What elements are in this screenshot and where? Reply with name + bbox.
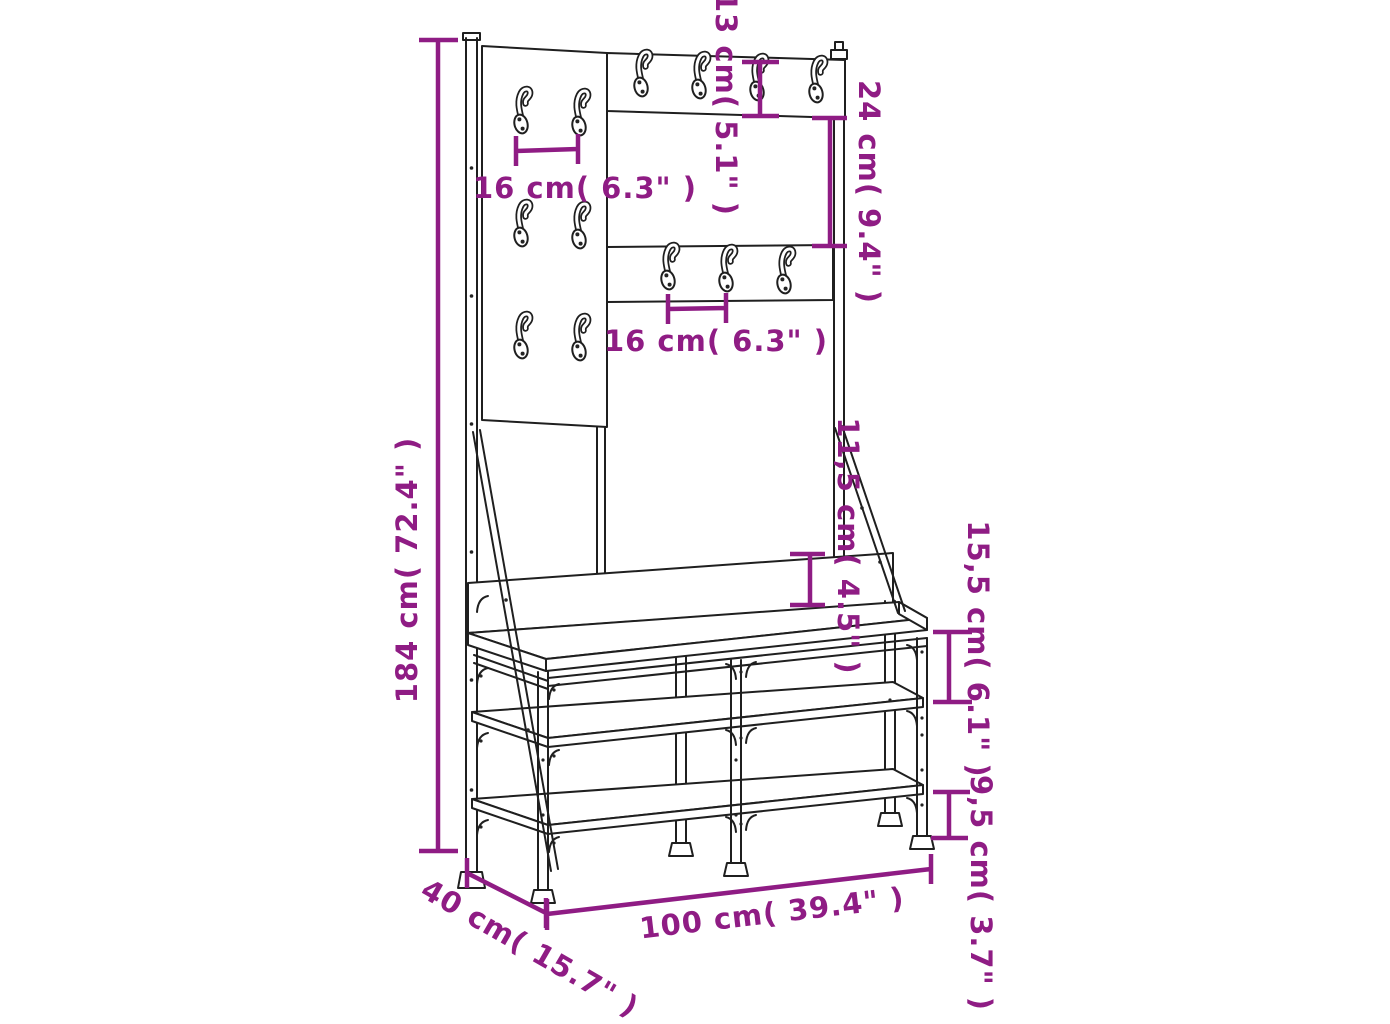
dimension-line	[812, 118, 847, 246]
dimension-label: 16 cm( 6.3" )	[604, 324, 828, 358]
dimension-depth: 40 cm( 15.7" )	[415, 858, 644, 1024]
left-post	[458, 33, 485, 888]
dimension-label: 184 cm( 72.4" )	[390, 437, 424, 703]
product-diagram: 184 cm( 72.4" ) 13 cm( 5.1" ) 24 cm( 9.4…	[0, 0, 1390, 1024]
dimension-upper-shelf-clearance: 15,5 cm( 6.1" )	[933, 520, 995, 777]
center-support-strip	[597, 427, 605, 574]
dimension-label: 40 cm( 15.7" )	[415, 872, 644, 1024]
diagram-canvas: 184 cm( 72.4" ) 13 cm( 5.1" ) 24 cm( 9.4…	[0, 0, 1390, 1024]
dimension-line	[419, 40, 458, 851]
dimension-label: 13 cm( 5.1" )	[709, 0, 743, 216]
dimension-lower-shelf-clearance: 9,5 cm( 3.7" )	[931, 775, 998, 1011]
dimension-label: 16 cm( 6.3" )	[473, 171, 697, 205]
back-center-leg	[669, 645, 693, 856]
dimension-total-height: 184 cm( 72.4" )	[390, 40, 458, 851]
dimension-label: 24 cm( 9.4" )	[852, 80, 886, 304]
middle-hook-rail	[607, 245, 833, 302]
dimension-label: 11,5 cm( 4.5" )	[831, 417, 865, 674]
dimension-label: 9,5 cm( 3.7" )	[964, 775, 998, 1011]
dimension-label: 100 cm( 39.4" )	[638, 881, 907, 946]
front-right-leg	[910, 638, 934, 849]
hook-panel	[482, 46, 607, 427]
middle-shelf	[472, 682, 923, 747]
dimension-label: 15,5 cm( 6.1" )	[961, 520, 995, 777]
dimension-lower-hook-spacing: 16 cm( 6.3" )	[604, 293, 828, 358]
